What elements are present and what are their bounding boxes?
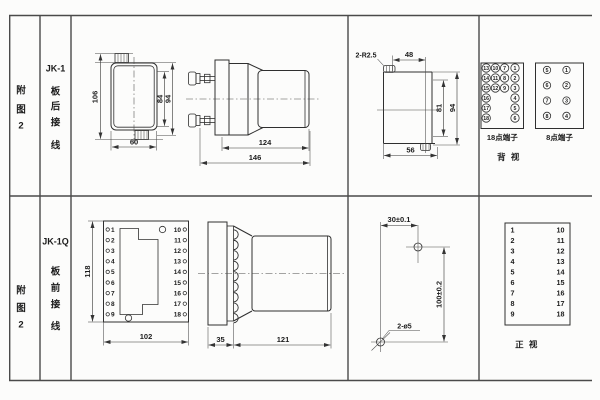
terminal-bump bbox=[234, 313, 239, 322]
terminal-number: 2 bbox=[565, 83, 568, 89]
terminal-number: 18 bbox=[174, 312, 182, 319]
terminal-circle bbox=[183, 260, 186, 263]
terminal-number: 11 bbox=[493, 76, 499, 82]
terminal-number: 4 bbox=[565, 114, 568, 120]
terminal-number: 1 bbox=[511, 226, 515, 235]
terminal-number: 18 bbox=[483, 116, 489, 122]
terminal-number: 16 bbox=[174, 290, 182, 297]
dim-label: 30±0.1 bbox=[388, 215, 411, 224]
terminal-number: 3 bbox=[111, 248, 115, 255]
terminal-number: 1 bbox=[514, 66, 517, 72]
terminal-bump bbox=[234, 282, 239, 291]
terminal-circle bbox=[183, 281, 186, 284]
dim-label: 94 bbox=[448, 103, 457, 112]
dim-label: 60 bbox=[130, 138, 138, 147]
terminal-number: 2 bbox=[511, 236, 515, 245]
terminal-number: 14 bbox=[557, 268, 565, 277]
terminal-number: 3 bbox=[511, 247, 515, 256]
fig-char: 图 bbox=[16, 105, 26, 116]
row1-fig-cell: 附 图 2 bbox=[16, 85, 26, 132]
drawing-sheet: 附 图 2 JK-1 板 后 接 线 附 图 2 JK-1Q 板 前 接 线 bbox=[0, 0, 600, 400]
terminal-number: 17 bbox=[174, 301, 182, 308]
jk1-front-view: 106 84 94 60 bbox=[91, 54, 177, 151]
terminal-circle bbox=[183, 228, 186, 231]
row2-model-cell: JK-1Q 板 前 接 线 bbox=[42, 237, 69, 333]
dim-label: 56 bbox=[406, 146, 414, 155]
terminal-bump bbox=[234, 272, 239, 281]
terminal-number: 8 bbox=[546, 114, 549, 120]
terminal-number: 10 bbox=[493, 66, 499, 72]
terminal-number: 3 bbox=[565, 99, 568, 105]
terminal-circle bbox=[106, 238, 109, 241]
model-label: JK-1Q bbox=[42, 237, 69, 247]
terminal-number: 2 bbox=[111, 237, 115, 244]
terminal-number: 7 bbox=[503, 66, 506, 72]
jk1q-drill-plan: 30±0.1 100±0.2 2-ø5 bbox=[371, 215, 450, 352]
terminal-number: 13 bbox=[557, 257, 565, 266]
dim-label: 124 bbox=[259, 138, 272, 147]
row1-model-cell: JK-1 板 后 接 线 bbox=[46, 64, 66, 152]
terminal-circle bbox=[183, 249, 186, 252]
jk1-panel-cutout: 48 81 94 56 2-R2.5 bbox=[355, 50, 460, 159]
terminal-number: 17 bbox=[557, 299, 565, 308]
terminal-number: 7 bbox=[546, 99, 549, 105]
terminal-number: 18 bbox=[557, 310, 565, 319]
dim-label: 118 bbox=[83, 265, 92, 277]
terminal-number: 1 bbox=[111, 227, 115, 234]
inner-step-outline bbox=[120, 229, 158, 315]
terminal-number: 8 bbox=[111, 301, 115, 308]
terminal-circle bbox=[106, 313, 109, 316]
terminal-number: 7 bbox=[111, 290, 115, 297]
terminal-number: 4 bbox=[111, 259, 115, 266]
terminal-number: 14 bbox=[174, 269, 182, 276]
dim-label: 106 bbox=[91, 91, 100, 104]
terminal-number: 11 bbox=[174, 237, 181, 244]
terminal-number: 2 bbox=[514, 76, 517, 82]
terminal-number: 4 bbox=[514, 96, 517, 102]
terminal-box-label: 18点端子 bbox=[487, 132, 518, 142]
terminal-circle bbox=[106, 302, 109, 305]
radius-note: 2-R2.5 bbox=[355, 53, 376, 60]
terminal-number: 17 bbox=[483, 106, 489, 112]
terminal-number: 10 bbox=[557, 226, 565, 235]
terminal-bump bbox=[234, 261, 239, 270]
mounting-hole bbox=[159, 226, 165, 232]
fig-char: 附 bbox=[16, 285, 26, 297]
terminal-circle bbox=[106, 281, 109, 284]
terminal-circle bbox=[183, 291, 186, 294]
fig-char: 2 bbox=[18, 320, 23, 331]
terminal-number: 9 bbox=[111, 312, 115, 319]
terminal-number: 8 bbox=[511, 299, 515, 308]
wiring-char: 前 bbox=[51, 282, 61, 294]
terminal-number: 6 bbox=[514, 116, 517, 122]
fig-char: 附 bbox=[16, 85, 26, 97]
terminal-number: 5 bbox=[111, 269, 115, 276]
terminal-number: 7 bbox=[511, 289, 515, 298]
holes-note: 2-ø5 bbox=[397, 324, 412, 331]
wiring-char: 线 bbox=[51, 140, 61, 152]
terminal-bump bbox=[234, 251, 239, 260]
terminal-number: 6 bbox=[546, 83, 549, 89]
wiring-char: 板 bbox=[51, 86, 61, 98]
terminal-bumps bbox=[234, 230, 239, 323]
dim-label: 146 bbox=[249, 153, 262, 162]
terminal-number: 4 bbox=[511, 257, 515, 266]
terminal-number: 12 bbox=[174, 248, 182, 255]
dim-label: 121 bbox=[277, 335, 290, 344]
terminal-circle bbox=[183, 302, 186, 305]
terminal-number: 12 bbox=[493, 86, 499, 92]
model-label: JK-1 bbox=[46, 64, 66, 74]
dim-label: 100±0.2 bbox=[435, 281, 444, 308]
terminal-bump bbox=[234, 303, 239, 312]
terminal-number: 6 bbox=[511, 278, 515, 287]
terminal-number: 3 bbox=[514, 86, 517, 92]
row2-fig-cell: 附 图 2 bbox=[16, 285, 26, 331]
terminal-number: 11 bbox=[557, 236, 565, 245]
jk1-side-view: 124 146 bbox=[186, 60, 320, 166]
terminal-number: 1 bbox=[565, 68, 568, 74]
figure-2-canvas: 附 图 2 JK-1 板 后 接 线 附 图 2 JK-1Q 板 前 接 线 bbox=[0, 0, 600, 400]
dim-label: 35 bbox=[216, 335, 224, 344]
terminal-circle bbox=[106, 228, 109, 231]
top-stud bbox=[115, 54, 129, 63]
terminal-circle bbox=[106, 291, 109, 294]
table-right: 101112131415161718 bbox=[557, 226, 565, 319]
terminal-box-label: 8点端子 bbox=[546, 132, 573, 142]
terminal-number: 5 bbox=[511, 268, 515, 277]
terminal-number: 5 bbox=[546, 68, 549, 74]
view-label: 背 视 bbox=[497, 152, 521, 162]
dim-label: 48 bbox=[405, 50, 413, 59]
terminal-number: 9 bbox=[511, 310, 515, 319]
terminal-number: 8 bbox=[503, 76, 506, 82]
terminal-circle bbox=[106, 260, 109, 263]
wiring-char: 线 bbox=[51, 321, 61, 333]
terminal-circle bbox=[106, 249, 109, 252]
dim-label: 81 bbox=[435, 104, 444, 112]
terminal-number: 9 bbox=[503, 86, 506, 92]
terminal-circle bbox=[183, 313, 186, 316]
dim-label: 94 bbox=[164, 94, 173, 103]
terminal-box-8 bbox=[536, 63, 584, 129]
terminal-number: 12 bbox=[557, 247, 565, 256]
terminal-number: 15 bbox=[174, 280, 182, 287]
terminal-number: 13 bbox=[483, 66, 489, 72]
jk1q-terminal-table: 123456789 101112131415161718 正 视 bbox=[505, 223, 570, 350]
jk1q-side-view: 35 121 bbox=[198, 222, 345, 349]
terminal-number: 16 bbox=[483, 96, 489, 102]
wiring-char: 接 bbox=[51, 117, 61, 129]
terminals-left: 123456789 bbox=[106, 227, 115, 319]
terminal-number: 15 bbox=[557, 278, 565, 287]
terminal-circle bbox=[183, 238, 186, 241]
terminals-right: 101112131415161718 bbox=[174, 227, 187, 319]
terminal-number: 5 bbox=[514, 106, 517, 112]
fig-char: 2 bbox=[18, 121, 23, 132]
terminal-bump bbox=[234, 293, 239, 302]
mounting-hole bbox=[125, 315, 131, 321]
mounting-bolt bbox=[189, 72, 216, 85]
dim-label: 102 bbox=[140, 332, 153, 341]
view-label: 正 视 bbox=[515, 340, 539, 350]
terminal-number: 16 bbox=[557, 289, 565, 298]
table-left: 123456789 bbox=[511, 226, 515, 319]
terminal-circle bbox=[106, 270, 109, 273]
wiring-char: 接 bbox=[51, 299, 61, 311]
terminal-circle bbox=[183, 270, 186, 273]
jk1q-front-view: 123456789 101112131415161718 118 102 bbox=[83, 221, 189, 346]
mounting-bolt bbox=[189, 114, 216, 127]
terminal-number: 14 bbox=[483, 76, 489, 82]
fig-char: 图 bbox=[16, 303, 26, 314]
terminal-number: 10 bbox=[174, 227, 182, 234]
terminals-18: 131415161718101112789123456 bbox=[482, 64, 519, 122]
terminal-bump bbox=[234, 240, 239, 249]
terminal-bump bbox=[234, 230, 239, 239]
terminal-number: 13 bbox=[174, 259, 182, 266]
terminal-number: 6 bbox=[111, 280, 115, 287]
terminals-8: 56781234 bbox=[543, 66, 570, 120]
terminal-number: 15 bbox=[483, 86, 489, 92]
wiring-char: 板 bbox=[51, 266, 61, 278]
wiring-char: 后 bbox=[51, 101, 61, 113]
jk1-terminals-rear: 131415161718101112789123456 56781234 18点… bbox=[481, 63, 584, 162]
